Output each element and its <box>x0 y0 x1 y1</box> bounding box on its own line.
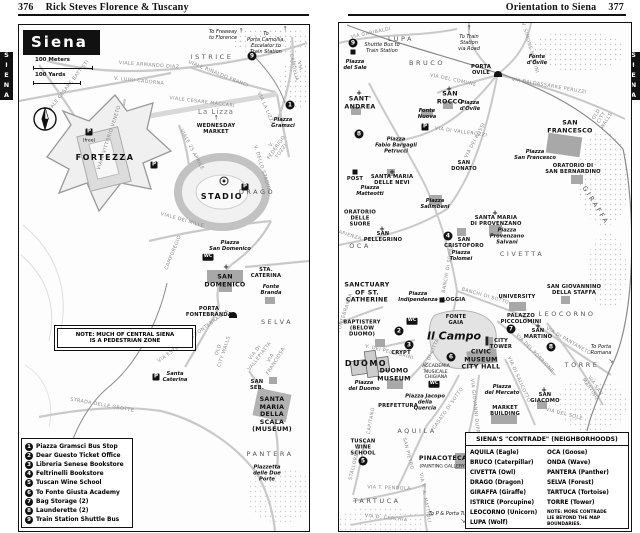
piazza-label: Piazza Provenzano Salvani <box>490 228 524 247</box>
place-label: FORTEZZA <box>76 153 135 163</box>
contrada-list-item: TARTUCA (Tortoise) <box>547 488 624 498</box>
soccer-ball-icon <box>220 177 229 186</box>
scale-bar-yards <box>33 81 81 85</box>
contrada-label: LUPA <box>388 36 414 44</box>
legend-item: 5Tuscan Wine School <box>25 479 129 488</box>
legend-item: 2Dear Guesto Ticket Office <box>25 451 129 460</box>
legend-item-label: Tuscan Wine School <box>36 480 102 486</box>
street-label: VIA D. CERCHIA <box>364 514 407 524</box>
street-label: STRADA DELLE GROTTE <box>70 398 135 415</box>
piazza-label: Piazza Gramsci <box>271 117 295 129</box>
pedestrian-zone-note: NOTE: MUCH OF CENTRAL SIENA IS A PEDESTR… <box>57 328 193 348</box>
piazza-label: Piazza Tolomei <box>450 250 472 262</box>
numbered-marker: 2 <box>395 327 404 336</box>
legend-item-label: Bag Storage (2) <box>36 499 88 505</box>
contrade-columns: AQUILA (Eagle)BRUCO (Caterpillar)CIVETTA… <box>466 446 628 530</box>
contrada-list-item: SELVA (Forest) <box>547 478 624 488</box>
place-label: PORTA OVILE <box>471 64 491 76</box>
street-label: CAMPOREGIO <box>164 235 183 271</box>
piazza-label: Piazza Jacopo della Quercia <box>405 394 445 413</box>
contrada-list-item: PANTERA (Panther) <box>547 468 624 478</box>
street-label: VIA DI SALICOTTO <box>505 356 530 404</box>
street-label: VIA DEL COMUNE <box>429 73 477 88</box>
street-label: V. FEDERIGO TOZZI <box>261 130 293 166</box>
numbered-marker: 4 <box>25 470 33 478</box>
place-label: BAPTISTERY (BELOW DUOMO) <box>343 320 381 339</box>
street-label: VIALE DEI MILLE <box>160 212 205 230</box>
contrada-label: SELVA <box>261 319 293 327</box>
legend-item: 4Feltrinelli Bookstore <box>25 470 129 479</box>
contrada-list-item: DRAGO (Dragon) <box>470 478 547 488</box>
place-label: PINACOTECA <box>419 455 467 463</box>
direction-arrow-icon: ↑ <box>466 24 471 31</box>
direction-note: To Train Station via Road <box>458 34 480 52</box>
direction-note: To Porta Romana <box>591 344 612 356</box>
wc-icon: WC <box>203 254 214 261</box>
contrada-label: DRAGO <box>239 189 275 197</box>
place-label: WEDNESDAY MARKET <box>197 123 236 135</box>
map-title: Siena <box>23 30 100 55</box>
contrada-label: GIRAFFA <box>580 185 610 227</box>
legend-item: 6To Fonte Giusta Academy <box>25 488 129 497</box>
contrade-note: NOTE: MORE CONTRADE LIE BEYOND THE MAP B… <box>547 510 617 528</box>
piazza-label: Fonte Branda <box>261 284 282 296</box>
legend-item-label: Libreria Senese Bookstore <box>36 462 124 468</box>
contrada-label: TORRE <box>565 362 600 370</box>
scale-yards-label: 100 Yards <box>35 72 66 78</box>
parking-icon: P <box>151 162 158 169</box>
numbered-marker: 3 <box>25 461 33 469</box>
left-page-header: 376Rick Steves Florence & Tuscany <box>18 2 189 13</box>
parking-icon: P <box>153 374 160 381</box>
contrada-list-item: AQUILA (Eagle) <box>470 448 547 458</box>
piazza-label: Fonte d'Ovile <box>527 54 547 66</box>
numbered-marker: 2 <box>25 452 33 460</box>
place-label: ORATORIO DELLE SUORE <box>344 210 376 229</box>
piazza-label: Piazzetta delle Due Porte <box>246 465 288 484</box>
direction-arrow-icon: ↑ <box>282 25 287 32</box>
left-page-number: 376 <box>18 2 34 13</box>
legend-item: 8Launderette (2) <box>25 506 129 515</box>
street-label: VIA DEL SOLE <box>545 408 583 423</box>
piazza-label: Fonte Nuova <box>418 108 436 120</box>
contrada-label: ISTRICE <box>191 54 234 62</box>
legend-item: 7Bag Storage (2) <box>25 497 129 506</box>
numbered-marker: 9 <box>248 52 257 61</box>
piazza-label: Piazza Fabio Bargagli Petrucci <box>375 137 417 156</box>
legend-item-label: Train Station Shuttle Bus <box>36 517 119 523</box>
street-label: VIA T. PENDOLA <box>367 485 411 492</box>
street-label: VIA GIOVANNI DUPRE <box>468 379 480 438</box>
contrada-list-item: TORRE (Tower) <box>547 498 624 508</box>
street-label: VIA DEI ROSSI <box>464 122 487 159</box>
piazza-label: Piazza Salimbeni <box>421 198 450 210</box>
contrade-box-title: SIENA'S "CONTRADE" (NEIGHBORHOODS) <box>466 433 628 446</box>
wc-icon: WC <box>407 318 418 325</box>
place-label: CIVIC MUSEUM CITY HALL <box>462 349 501 372</box>
legend-item-label: Feltrinelli Bookstore <box>36 471 104 477</box>
numbered-marker: 6 <box>25 489 33 497</box>
contrada-label: CIVETTA <box>500 251 544 259</box>
place-label: SAN GIACOMO <box>530 392 559 404</box>
church-cross-icon: + <box>223 264 229 270</box>
street-label: VIALE RINALDO FRANCI <box>187 60 249 89</box>
direction-note: To P & Porta Tufi <box>429 511 470 517</box>
place-label: SAN GIOVANNINO DELLA STAFFA <box>547 284 601 296</box>
direction-note: To Freeway to Florence <box>209 29 237 41</box>
place-label: ORATORIO DI SAN BERNARDINO <box>545 163 601 175</box>
numbered-marker: 1 <box>25 443 33 451</box>
wc-icon: WC <box>429 381 440 388</box>
legend-item-label: Launderette (2) <box>36 508 88 514</box>
numbered-marker: 7 <box>25 498 33 506</box>
legend-item-label: Dear Guesto Ticket Office <box>36 453 120 459</box>
direction-arrow-icon: ↑ <box>238 27 243 34</box>
contrada-list-item: LUPA (Wolf) <box>470 518 547 528</box>
numbered-marker: 1 <box>286 101 295 110</box>
place-label: POST <box>347 176 363 182</box>
street-label: CAPITANO <box>367 407 377 435</box>
piazza-label: Piazza d'Ovile <box>460 100 480 112</box>
place-label: SAN DONATO <box>451 160 477 172</box>
contrada-label: LEOCORNO <box>539 311 596 319</box>
legend-item: 9Train Station Shuttle Bus <box>25 516 129 525</box>
place-label: DUOMO MUSEUM <box>377 367 410 382</box>
parking-icon: P <box>86 129 93 136</box>
contrada-list-item: ONDA (Wave) <box>547 458 624 468</box>
scale-meters-label: 100 Meters <box>35 57 70 63</box>
street-label: VIA CAMOLLIA <box>287 52 304 82</box>
numbered-marker: 5 <box>25 479 33 487</box>
contrada-list-item: BRUCO (Caterpillar) <box>470 458 547 468</box>
street-label: SAN PIETRO <box>400 437 414 470</box>
contrada-label: BRUCO <box>409 60 445 68</box>
right-header-title: Orientation to Siena <box>506 2 597 13</box>
legend-item-label: To Fonte Giusta Academy <box>36 490 120 496</box>
map-legend: 1Piazza Gramsci Bus Stop2Dear Guesto Tic… <box>21 438 133 528</box>
siena-overview-map: To Freeway to Florence↑To Porta Camollia… <box>18 24 310 532</box>
contrada-label: AQUILA <box>397 428 436 436</box>
piazza-label: Piazza Indipendenza <box>398 291 437 303</box>
direction-arrow-icon: ↑ <box>213 114 218 121</box>
place-label: SAN FRANCESCO <box>547 119 592 134</box>
numbered-marker: 8 <box>355 130 364 139</box>
legend-item: 3Libreria Senese Bookstore <box>25 460 129 469</box>
compass-north-icon <box>31 101 59 135</box>
piazza-label: Piazza San Domenico <box>209 240 251 252</box>
place-label: MARKET BUILDING <box>490 405 520 417</box>
siena-center-map: 9Shuttle Bus to Train StationPiazza del … <box>338 22 632 532</box>
numbered-marker: 7 <box>507 325 516 334</box>
piazza-label: Piazza del Sale <box>343 59 366 71</box>
contrada-label: OCA <box>349 243 371 251</box>
piazza-label: Piazza San Francesco <box>514 149 556 161</box>
street-label: VIA GARIBALDI <box>350 27 391 41</box>
right-page-header: Orientation to Siena377 <box>506 2 624 13</box>
legend-item: 1Piazza Gramsci Bus Stop <box>25 442 129 451</box>
contrada-list-item: GIRAFFA (Giraffe) <box>470 488 547 498</box>
left-edge-tab: SIENA <box>0 52 13 100</box>
small-label: ACCADEMIA MUSICALE CHIGIANA <box>422 364 450 381</box>
small-label: (free) <box>83 138 96 144</box>
contrada-list-item: CIVETTA (Owl) <box>470 468 547 478</box>
numbered-marker: 6 <box>447 353 456 362</box>
numbered-marker: 3 <box>405 341 414 350</box>
place-label: UNIVERSITY <box>499 294 536 300</box>
left-header-title: Rick Steves Florence & Tuscany <box>46 2 189 13</box>
piazza-label: Piazza del Mercato <box>485 384 520 396</box>
contrade-box: SIENA'S "CONTRADE" (NEIGHBORHOODS) AQUIL… <box>465 432 629 529</box>
street-label: V. LUIGI CADORNA <box>114 77 165 88</box>
place-label: SANTA MARIA DELLA SCALA (MUSEUM) <box>252 396 292 434</box>
direction-arrow-icon: ↘ <box>608 357 613 364</box>
city-gate-icon <box>494 71 502 77</box>
contrade-right-column: OCA (Goose)ONDA (Wave)PANTERA (Panther)S… <box>547 448 624 528</box>
piazza-label: Piazza Matteotti <box>356 185 383 197</box>
street-label: VIALE ARMANDO DIAZ <box>119 61 180 71</box>
place-label: STADIO <box>201 192 243 202</box>
street-label: V. SIMONE MARTINI <box>519 22 539 74</box>
small-label: (PAINTING GALLERY) <box>419 464 466 470</box>
piazza-label: Santa Caterina <box>163 371 188 383</box>
tower-icon <box>486 337 489 346</box>
scale-bar-meters <box>33 66 93 70</box>
guidebook-spread: 376Rick Steves Florence & Tuscany Orient… <box>0 0 640 533</box>
place-label: FONTE GAIA <box>446 314 466 326</box>
place-label: SAN CRISTOFORO <box>444 237 484 249</box>
street-label: VIA BALDASSARRE PERUZZI <box>511 78 587 97</box>
contrada-label: PANTERA <box>246 451 293 459</box>
place-label: STA. CATERINA <box>251 267 281 279</box>
contrada-list-item: OCA (Goose) <box>547 448 624 458</box>
place-label: CRYPT <box>391 350 411 356</box>
street-label: SAPIENZA <box>338 229 362 243</box>
parking-icon: P <box>422 124 429 131</box>
numbered-marker: 9 <box>25 516 33 524</box>
place-label: SAN SEB. <box>250 379 264 391</box>
building-marker-icon <box>353 170 358 175</box>
place-label: SANTA MARIA DI PROVENZANO <box>470 215 521 227</box>
contrada-label: TARTUCA <box>353 498 400 506</box>
street-label: VIA SAN MARTINO <box>576 369 608 408</box>
building-marker-icon <box>351 50 356 55</box>
contrada-list-item: ISTRICE (Porcupine) <box>470 498 547 508</box>
right-page-number: 377 <box>608 2 624 13</box>
piazza-label: Piazza del Duomo <box>348 380 379 392</box>
street-label: OLD CITY WALLS <box>212 334 233 368</box>
place-label: LOGGIA <box>442 297 465 303</box>
place-label: SAN DOMENICO <box>204 273 245 288</box>
contrade-left-column: AQUILA (Eagle)BRUCO (Caterpillar)CIVETTA… <box>470 448 547 528</box>
legend-item-label: Piazza Gramsci Bus Stop <box>36 444 118 450</box>
right-header-rule <box>348 14 626 16</box>
place-label: SANT' ANDREA <box>344 95 375 110</box>
numbered-marker: 8 <box>25 507 33 515</box>
numbered-marker: 8 <box>547 343 556 352</box>
left-header-rule <box>18 14 309 16</box>
contrada-list-item: LEOCORNO (Unicorn) <box>470 508 547 518</box>
